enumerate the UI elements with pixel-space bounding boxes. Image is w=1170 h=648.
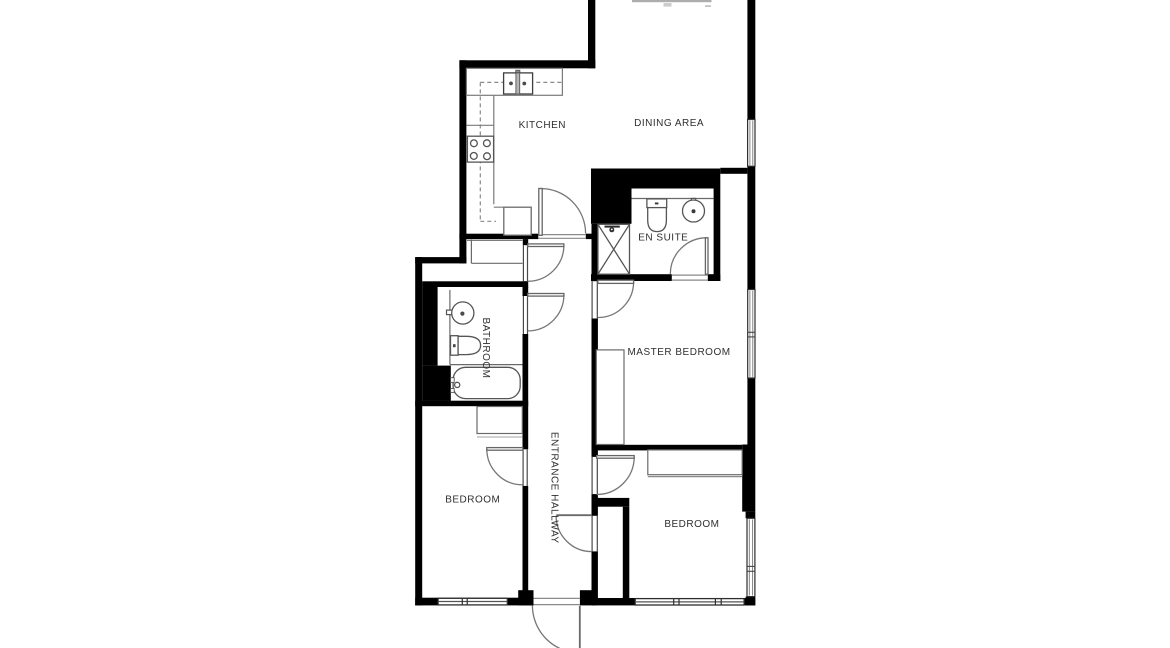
svg-text:ENTRANCE HALLWAY: ENTRANCE HALLWAY [549,432,560,544]
svg-text:EN SUITE: EN SUITE [638,233,688,244]
svg-text:MASTER BEDROOM: MASTER BEDROOM [627,347,730,358]
svg-text:BEDROOM: BEDROOM [445,495,500,506]
svg-text:KITCHEN: KITCHEN [519,120,566,131]
svg-text:BATHROOM: BATHROOM [480,317,491,378]
svg-text:BEDROOM: BEDROOM [664,519,719,530]
svg-text:DINING AREA: DINING AREA [634,118,704,129]
